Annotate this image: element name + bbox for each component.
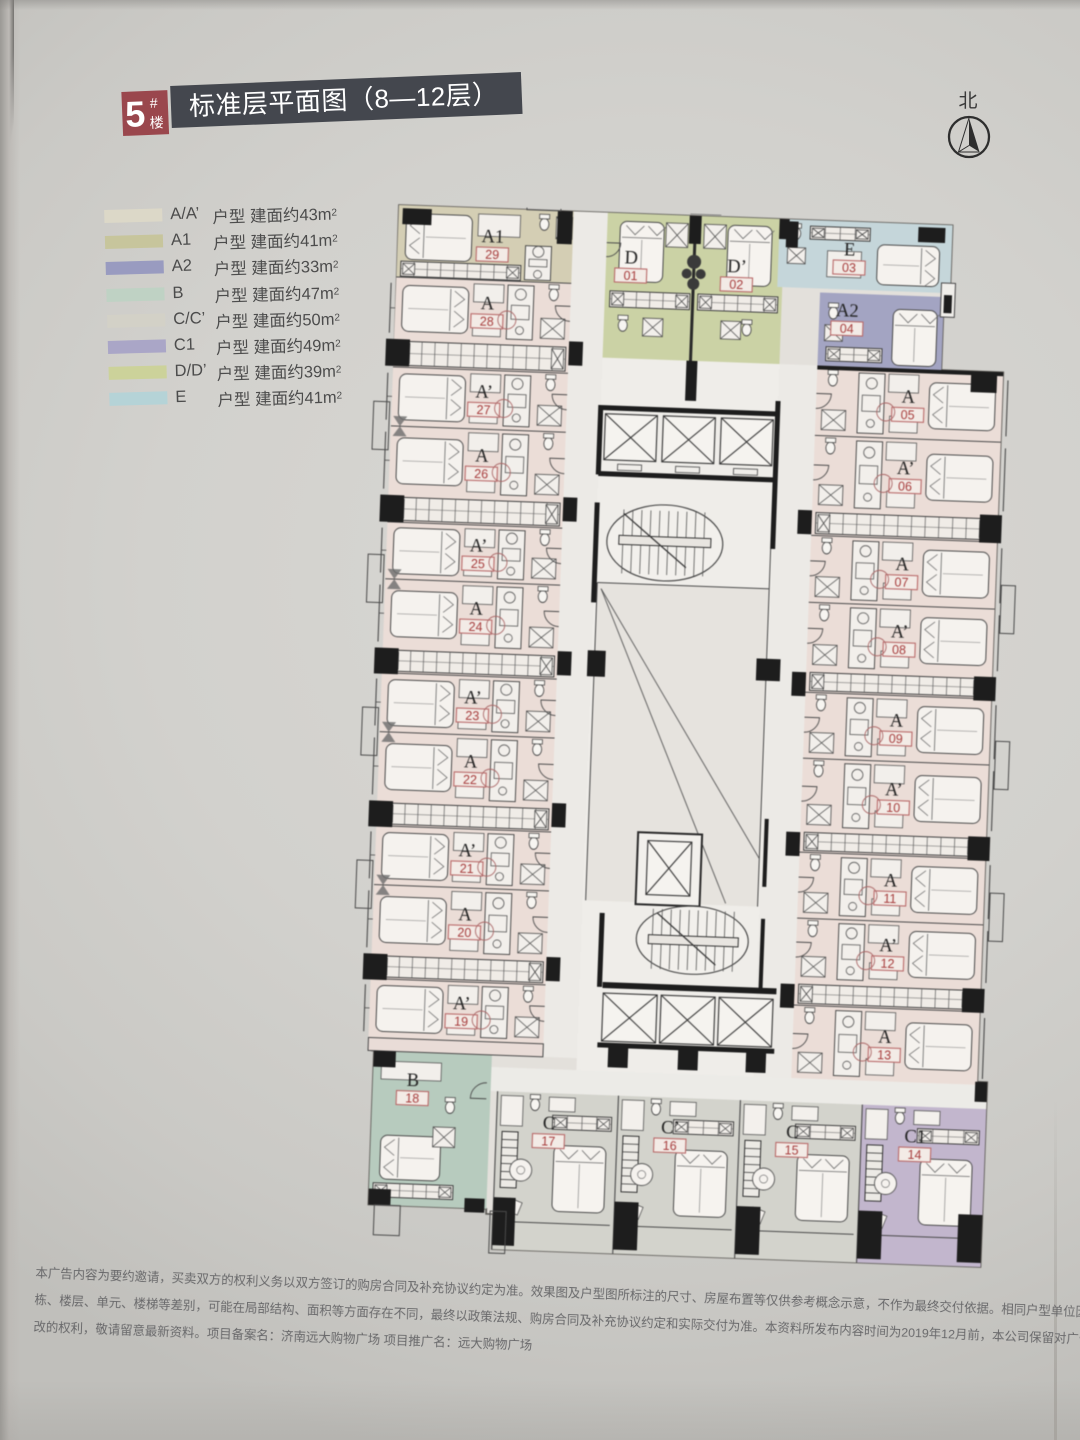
svg-text:A: A [475, 446, 490, 466]
svg-text:12: 12 [880, 957, 894, 972]
svg-text:A’: A’ [475, 382, 493, 403]
svg-text:A: A [469, 599, 484, 619]
svg-text:A: A [480, 294, 495, 314]
svg-text:A’: A’ [464, 688, 482, 709]
svg-text:D: D [624, 248, 638, 268]
svg-text:C’: C’ [661, 1118, 680, 1139]
svg-text:03: 03 [842, 261, 856, 276]
svg-text:19: 19 [454, 1015, 468, 1030]
svg-text:A: A [883, 871, 898, 891]
svg-text:A’: A’ [891, 622, 909, 643]
svg-text:25: 25 [471, 557, 485, 572]
svg-text:20: 20 [457, 926, 471, 941]
svg-text:A’: A’ [469, 536, 487, 557]
svg-text:A: A [464, 752, 479, 772]
svg-text:C: C [542, 1114, 555, 1134]
svg-text:01: 01 [623, 269, 637, 284]
svg-text:11: 11 [883, 892, 897, 906]
svg-text:26: 26 [474, 467, 488, 482]
svg-text:16: 16 [662, 1139, 676, 1154]
svg-text:23: 23 [465, 709, 479, 724]
svg-text:05: 05 [900, 408, 914, 423]
svg-text:C1: C1 [904, 1127, 926, 1148]
svg-text:D’: D’ [727, 257, 747, 278]
svg-text:27: 27 [476, 403, 490, 418]
svg-text:14: 14 [907, 1148, 921, 1163]
svg-text:06: 06 [898, 479, 912, 494]
svg-text:09: 09 [889, 732, 903, 747]
svg-text:02: 02 [729, 278, 743, 293]
svg-text:15: 15 [784, 1143, 798, 1158]
svg-text:A: A [901, 388, 916, 408]
svg-text:17: 17 [541, 1134, 555, 1149]
svg-text:A’: A’ [458, 841, 476, 862]
svg-text:北: 北 [958, 90, 977, 112]
svg-text:21: 21 [460, 862, 474, 877]
svg-text:A1: A1 [481, 227, 504, 248]
svg-text:E: E [844, 240, 856, 260]
svg-text:A: A [895, 555, 910, 575]
svg-text:A2: A2 [836, 301, 859, 322]
svg-text:A’: A’ [879, 936, 897, 957]
svg-text:07: 07 [894, 575, 908, 590]
svg-text:13: 13 [877, 1048, 891, 1063]
svg-text:A’: A’ [897, 459, 915, 480]
svg-text:08: 08 [892, 643, 906, 658]
svg-text:A: A [458, 905, 473, 925]
svg-text:A: A [889, 711, 904, 731]
svg-text:22: 22 [463, 773, 477, 788]
svg-text:A: A [878, 1028, 893, 1048]
svg-text:C: C [786, 1123, 799, 1143]
svg-text:29: 29 [485, 248, 499, 263]
svg-text:10: 10 [886, 801, 900, 816]
svg-text:24: 24 [468, 620, 482, 635]
svg-text:18: 18 [405, 1091, 419, 1106]
svg-text:28: 28 [480, 315, 494, 330]
svg-text:A’: A’ [885, 780, 903, 801]
svg-text:A’: A’ [453, 994, 471, 1015]
svg-text:B: B [406, 1071, 419, 1091]
svg-text:04: 04 [840, 322, 854, 337]
